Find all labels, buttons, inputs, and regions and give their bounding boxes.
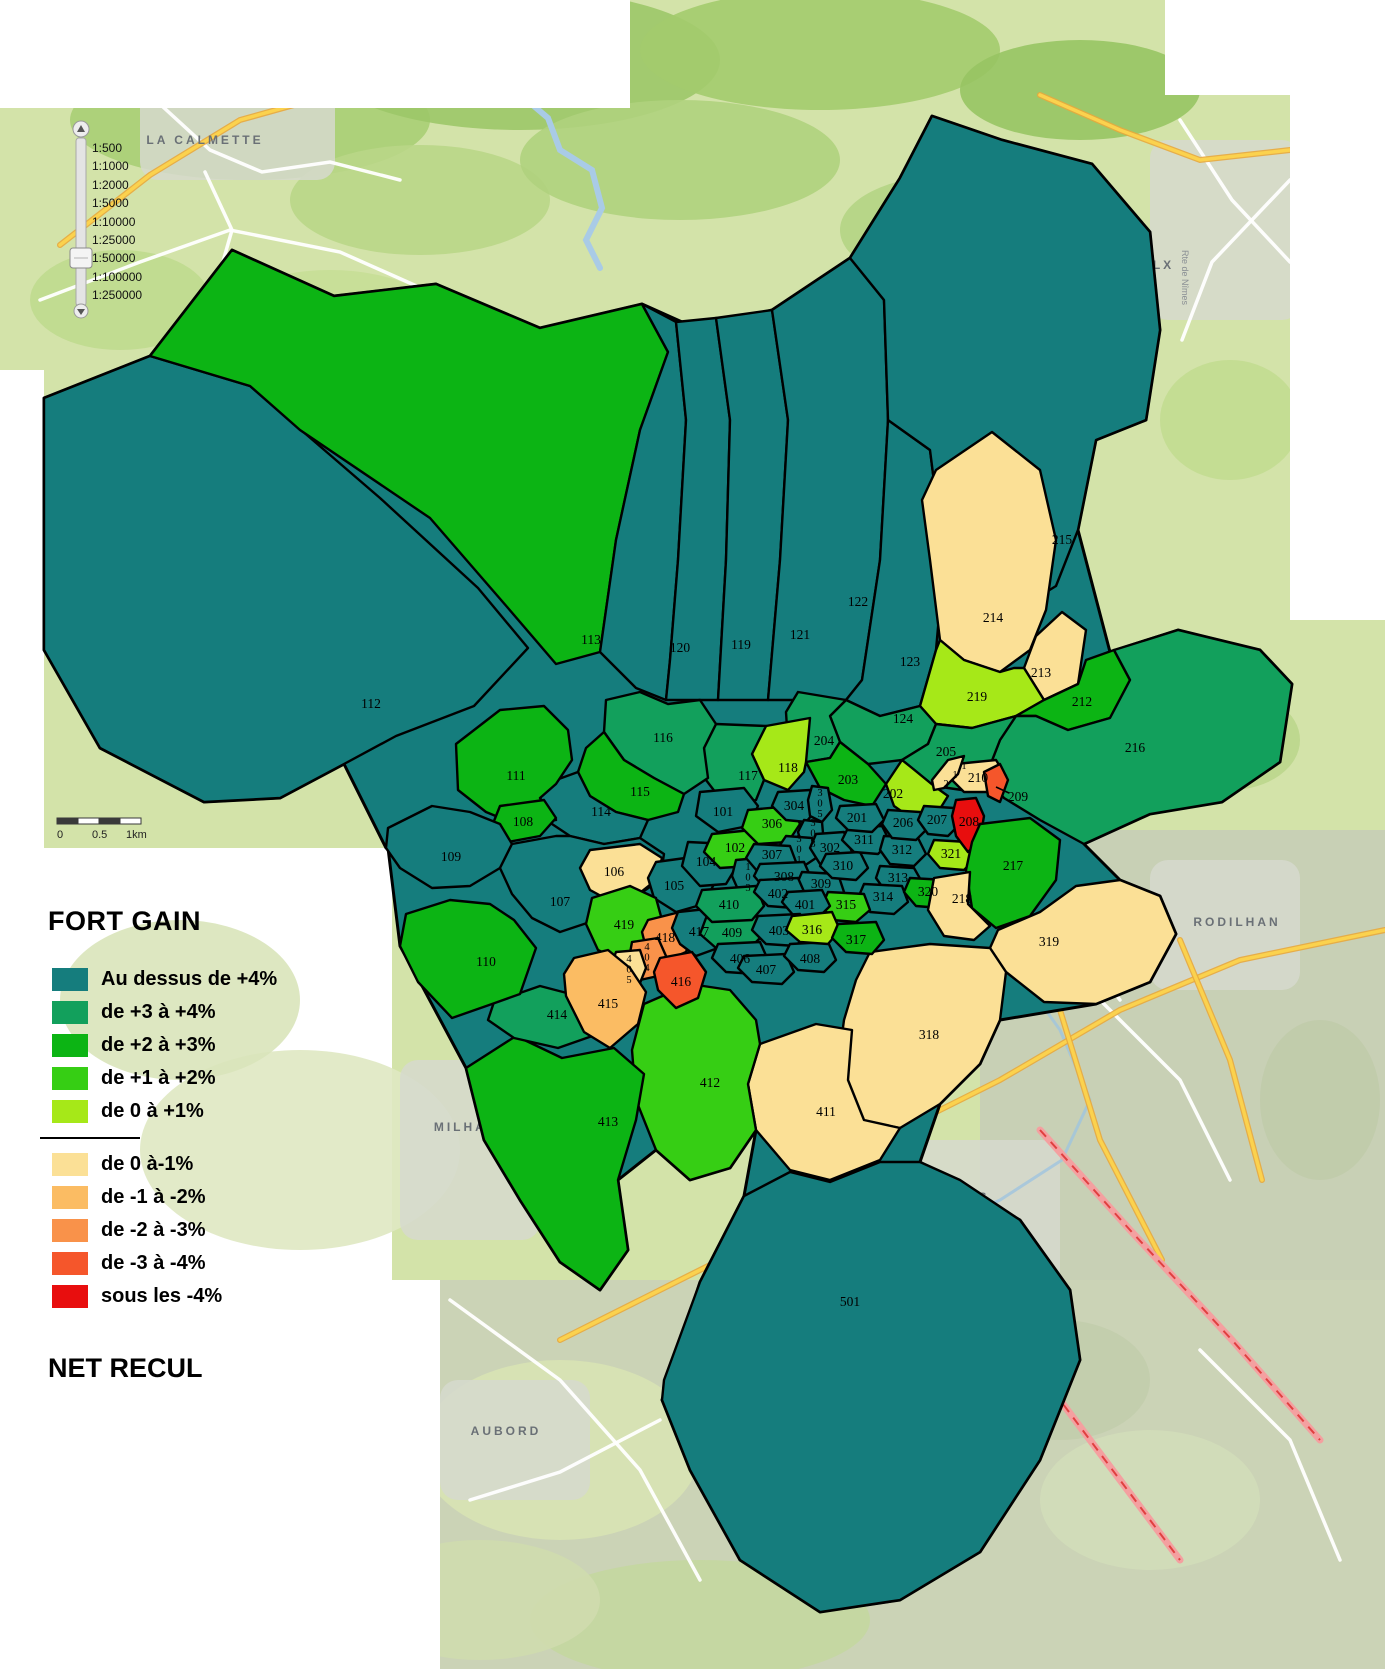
zone-label-124: 124: [893, 711, 914, 726]
zone-label-212: 212: [1072, 694, 1092, 709]
zone-label-316: 316: [802, 922, 823, 937]
zone-label-406: 406: [730, 951, 751, 966]
legend-negative-swatch-4: [52, 1285, 88, 1308]
legend-negative-label-1: de -1 à -2%: [101, 1186, 205, 1209]
zone-label-401: 401: [795, 897, 815, 912]
legend: FORT GAIN Au dessus de +4%de +3 à +4%de …: [44, 906, 314, 1384]
zone-label-304: 304: [784, 798, 805, 813]
zone-label-318: 318: [919, 1027, 940, 1042]
legend-negative-row-2: de -2 à -3%: [44, 1214, 314, 1247]
legend-positive-swatch-3: [52, 1067, 88, 1090]
zoom-level-label-1-25000: 1:25000: [92, 233, 136, 247]
zone-label-310: 310: [833, 858, 854, 873]
zone-label-412: 412: [700, 1075, 720, 1090]
legend-negative-row-4: sous les -4%: [44, 1280, 314, 1313]
zone-label-117: 117: [738, 768, 758, 783]
zone-label-501: 501: [840, 1294, 860, 1309]
legend-positive-row-3: de +1 à +2%: [44, 1062, 314, 1095]
zone-label-202: 202: [883, 786, 903, 801]
zone-label-209: 209: [1008, 789, 1029, 804]
zone-label-402: 402: [768, 886, 788, 901]
zone-label-105: 105: [664, 878, 685, 893]
zone-label-207: 207: [927, 812, 948, 827]
zone-label-213: 213: [1031, 665, 1052, 680]
legend-positive-label-0: Au dessus de +4%: [101, 968, 277, 991]
zone-label-118: 118: [778, 760, 798, 775]
legend-negative-row-3: de -3 à -4%: [44, 1247, 314, 1280]
legend-positive-label-2: de +2 à +3%: [101, 1034, 216, 1057]
zone-label-119: 119: [731, 637, 751, 652]
legend-negative-label-0: de 0 à-1%: [101, 1153, 193, 1176]
legend-positive-row-1: de +3 à +4%: [44, 996, 314, 1029]
zone-label-301: 301: [796, 834, 801, 866]
zone-label-216: 216: [1125, 740, 1146, 755]
zone-label-313: 313: [888, 870, 909, 885]
zone-label-121: 121: [790, 627, 810, 642]
zone-label-411: 411: [816, 1104, 836, 1119]
zone-label-204: 204: [814, 733, 835, 748]
legend-negative-label-4: sous les -4%: [101, 1285, 222, 1308]
zoom-slider-track[interactable]: [76, 138, 86, 306]
legend-positive-rows: Au dessus de +4%de +3 à +4%de +2 à +3%de…: [44, 963, 314, 1128]
town-label-la-calmette: LA CALMETTE: [146, 133, 263, 147]
legend-negative-label-2: de -2 à -3%: [101, 1219, 205, 1242]
legend-positive-swatch-0: [52, 968, 88, 991]
zone-label-312: 312: [892, 842, 912, 857]
legend-positive-label-4: de 0 à +1%: [101, 1100, 204, 1123]
zone-label-415: 415: [598, 996, 619, 1011]
zone-label-103: 103: [745, 862, 750, 894]
zone-label-419: 419: [614, 917, 635, 932]
zone-label-305: 305: [817, 788, 822, 820]
zone-label-215: 215: [1052, 532, 1073, 547]
zoom-level-label-1-2000: 1:2000: [92, 178, 129, 192]
zone-label-218: 218: [952, 891, 973, 906]
zone-label-219: 219: [967, 689, 988, 704]
zone-label-109: 109: [441, 849, 462, 864]
map-canvas[interactable]: LA CALMETTEPOULXRODILHANCAISSARGUESMILHA…: [0, 0, 1385, 1669]
zone-label-116: 116: [653, 730, 673, 745]
legend-positive-row-4: de 0 à +1%: [44, 1095, 314, 1128]
zoom-level-label-1-500: 1:500: [92, 141, 122, 155]
zone-label-201: 201: [847, 810, 867, 825]
zone-label-102: 102: [725, 840, 745, 855]
zoom-level-label-1-250000: 1:250000: [92, 288, 142, 302]
zone-label-113: 113: [581, 632, 601, 647]
zone-label-104: 104: [696, 854, 717, 869]
zone-label-403: 403: [769, 923, 790, 938]
scale-bar-label-0: 0: [57, 829, 63, 841]
zone-label-308: 308: [774, 869, 795, 884]
road-label: Rte de Nîmes: [1180, 250, 1190, 306]
zone-label-306: 306: [762, 816, 783, 831]
zone-label-107: 107: [550, 894, 571, 909]
zone-label-317: 317: [846, 932, 867, 947]
zone-label-120: 120: [670, 640, 691, 655]
zone-label-417: 417: [689, 924, 710, 939]
zoom-level-label-1-5000: 1:5000: [92, 196, 129, 210]
legend-negative-row-1: de -1 à -2%: [44, 1181, 314, 1214]
zone-label-309: 309: [811, 876, 832, 891]
zone-label-404: 404: [644, 942, 650, 974]
zone-label-115: 115: [630, 784, 650, 799]
legend-negative-swatch-3: [52, 1252, 88, 1275]
legend-positive-label-1: de +3 à +4%: [101, 1001, 216, 1024]
zone-label-214: 214: [983, 610, 1004, 625]
zone-label-320: 320: [918, 884, 939, 899]
zone-label-314: 314: [873, 889, 894, 904]
zone-label-203: 203: [838, 772, 859, 787]
zone-label-210: 210: [968, 770, 989, 785]
legend-positive-swatch-1: [52, 1001, 88, 1024]
zone-label-108: 108: [513, 814, 534, 829]
zone-label-110: 110: [476, 954, 496, 969]
legend-positive-label-3: de +1 à +2%: [101, 1067, 216, 1090]
zone-label-408: 408: [800, 951, 821, 966]
scale-bar-label-2: 1km: [126, 829, 147, 841]
zone-label-114: 114: [591, 804, 611, 819]
zoom-level-label-1-50000: 1:50000: [92, 251, 136, 265]
zoom-level-label-1-10000: 1:10000: [92, 215, 136, 229]
zone-label-407: 407: [756, 962, 777, 977]
zone-label-410: 410: [719, 897, 740, 912]
zone-label-123: 123: [900, 654, 921, 669]
zone-label-303: 303: [810, 818, 815, 850]
legend-negative-label-3: de -3 à -4%: [101, 1252, 205, 1275]
zone-label-122: 122: [848, 594, 868, 609]
legend-negative-swatch-2: [52, 1219, 88, 1242]
zone-label-302: 302: [820, 840, 840, 855]
legend-title-net-recul: NET RECUL: [48, 1353, 314, 1384]
legend-negative-row-0: de 0 à-1%: [44, 1148, 314, 1181]
zone-label-101: 101: [713, 804, 733, 819]
town-label-rodilhan: RODILHAN: [1193, 915, 1280, 929]
zone-label-205: 205: [936, 744, 957, 759]
zone-label-416: 416: [671, 974, 692, 989]
legend-positive-swatch-4: [52, 1100, 88, 1123]
zoom-level-label-1-1000: 1:1000: [92, 159, 129, 173]
zone-label-409: 409: [722, 925, 743, 940]
zone-label-405: 405: [626, 954, 632, 986]
legend-negative-swatch-1: [52, 1186, 88, 1209]
zone-label-112: 112: [361, 696, 381, 711]
legend-divider: [40, 1137, 140, 1139]
zone-label-321: 321: [941, 846, 961, 861]
legend-positive-row-0: Au dessus de +4%: [44, 963, 314, 996]
town-label-aubord: AUBORD: [471, 1424, 542, 1438]
zone-label-307: 307: [762, 847, 783, 862]
scale-bar-label-1: 0.5: [92, 829, 107, 841]
zone-label-111: 111: [506, 768, 525, 783]
zone-label-206: 206: [893, 815, 914, 830]
zoom-level-label-1-100000: 1:100000: [92, 270, 142, 284]
zone-label-106: 106: [604, 864, 625, 879]
map-application: LA CALMETTEPOULXRODILHANCAISSARGUESMILHA…: [0, 0, 1385, 1669]
zone-label-418: 418: [655, 930, 676, 945]
legend-negative-rows: de 0 à-1%de -1 à -2%de -2 à -3%de -3 à -…: [44, 1148, 314, 1313]
legend-positive-swatch-2: [52, 1034, 88, 1057]
zone-label-217: 217: [1003, 858, 1024, 873]
legend-negative-swatch-0: [52, 1153, 88, 1176]
zone-label-315: 315: [836, 897, 857, 912]
zone-label-319: 319: [1039, 934, 1060, 949]
zone-label-414: 414: [547, 1007, 568, 1022]
legend-positive-row-2: de +2 à +3%: [44, 1029, 314, 1062]
zone-label-413: 413: [598, 1114, 619, 1129]
legend-title-fort-gain: FORT GAIN: [48, 906, 314, 937]
zone-label-311: 311: [854, 832, 874, 847]
zone-label-208: 208: [959, 814, 980, 829]
